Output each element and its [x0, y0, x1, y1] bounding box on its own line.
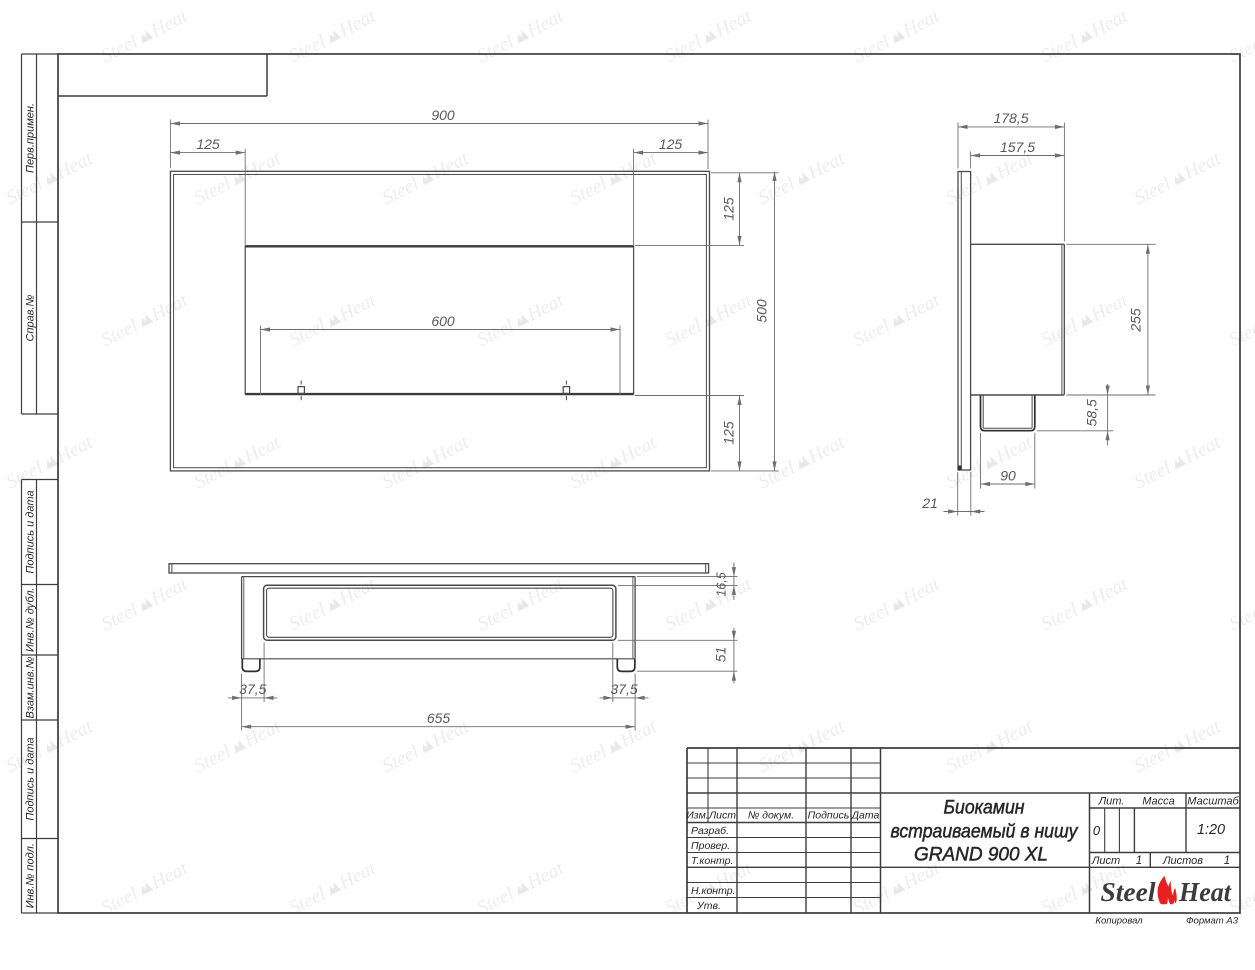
svg-text:Масштаб: Масштаб	[1187, 796, 1239, 808]
svg-text:Heat: Heat	[1178, 877, 1232, 907]
svg-text:655: 655	[427, 710, 451, 726]
svg-text:Лист: Лист	[708, 810, 736, 822]
svg-text:Steel: Steel	[1101, 877, 1156, 907]
svg-text:1:20: 1:20	[1197, 822, 1225, 838]
svg-text:Копировал: Копировал	[1095, 916, 1143, 927]
svg-text:600: 600	[431, 313, 455, 329]
svg-text:№ докум.: № докум.	[748, 810, 794, 822]
svg-text:Инв.№ дубл.: Инв.№ дубл.	[25, 587, 37, 652]
svg-text:500: 500	[754, 299, 770, 323]
svg-text:178,5: 178,5	[993, 110, 1028, 126]
svg-text:Перв.примен.: Перв.примен.	[25, 103, 37, 173]
svg-text:Взам.инв.№: Взам.инв.№	[25, 656, 37, 718]
svg-text:157,5: 157,5	[1000, 139, 1035, 155]
svg-text:Н.контр.: Н.контр.	[691, 885, 735, 897]
svg-text:125: 125	[721, 421, 737, 445]
svg-text:Масса: Масса	[1142, 796, 1175, 808]
svg-text:Биокамин: Биокамин	[944, 798, 1025, 819]
svg-text:21: 21	[921, 495, 938, 511]
svg-text:Утв.: Утв.	[696, 900, 721, 912]
svg-text:90: 90	[1000, 467, 1016, 483]
svg-text:900: 900	[431, 107, 455, 123]
svg-text:Лит.: Лит.	[1098, 796, 1125, 808]
svg-text:37,5: 37,5	[610, 681, 637, 697]
svg-text:37,5: 37,5	[239, 681, 266, 697]
svg-text:Справ.№: Справ.№	[25, 294, 37, 341]
svg-text:125: 125	[659, 136, 683, 152]
svg-text:51: 51	[713, 647, 729, 663]
svg-text:1: 1	[1136, 855, 1142, 867]
svg-text:58,5: 58,5	[1084, 399, 1100, 426]
svg-text:Дата: Дата	[851, 810, 880, 822]
svg-text:Формат А3: Формат А3	[1186, 916, 1239, 927]
svg-text:встраиваемый в нишу: встраиваемый в нишу	[891, 822, 1079, 843]
svg-text:Разраб.: Разраб.	[691, 825, 729, 837]
svg-text:16,5: 16,5	[715, 572, 729, 596]
svg-text:1: 1	[1224, 855, 1230, 867]
svg-text:Лист: Лист	[1091, 855, 1120, 867]
svg-text:0: 0	[1093, 823, 1101, 838]
svg-text:125: 125	[196, 136, 220, 152]
svg-text:GRAND 900 XL: GRAND 900 XL	[914, 845, 1048, 866]
svg-text:255: 255	[1128, 308, 1144, 333]
svg-text:Листов: Листов	[1162, 855, 1203, 867]
svg-text:125: 125	[721, 197, 737, 221]
svg-text:Подпись: Подпись	[808, 810, 850, 822]
svg-text:Т.контр.: Т.контр.	[691, 855, 733, 867]
svg-text:Изм.: Изм.	[686, 810, 708, 822]
svg-text:Подпись и дата: Подпись и дата	[25, 490, 37, 573]
svg-text:Провер.: Провер.	[691, 840, 730, 852]
svg-text:Инв.№ подл.: Инв.№ подл.	[25, 843, 37, 908]
svg-text:Подпись и дата: Подпись и дата	[25, 737, 37, 820]
